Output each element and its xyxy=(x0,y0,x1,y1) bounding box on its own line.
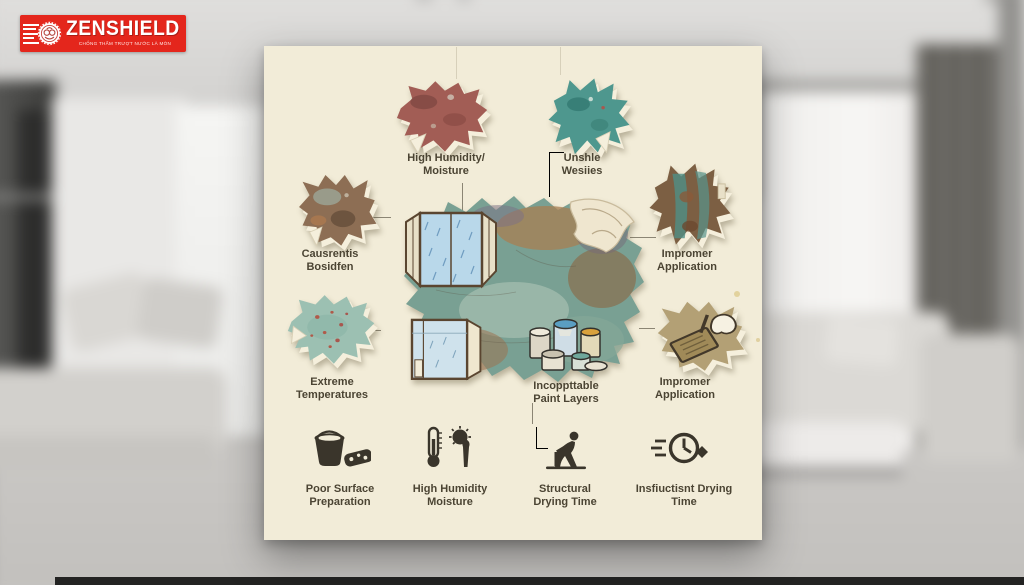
peeled-paint-patch-teal xyxy=(545,75,633,161)
card-crease xyxy=(560,47,561,75)
card-stain xyxy=(756,338,760,342)
thermometer-sun-icon xyxy=(422,425,480,473)
open-window-interior-illustration xyxy=(412,320,480,379)
open-window-rain-illustration xyxy=(406,213,496,286)
callout-label-impromer-lower: Impromer Application xyxy=(623,376,747,403)
rosette-seal-icon xyxy=(36,20,63,47)
cause-label-insufficient-drying: Insfiuctisnt Drying Time xyxy=(624,483,744,510)
sofa-pillow xyxy=(136,277,224,350)
cause-label-structural-drying: Structural Drying Time xyxy=(505,483,625,510)
trowel-hand-patch xyxy=(650,297,748,379)
brand-name: ZENSHIELD xyxy=(66,17,175,40)
central-peeled-wall-illustration xyxy=(396,190,646,386)
right-sofa-arm xyxy=(920,334,1020,462)
callout-label-unshle-wesiies: Unshle Wesiies xyxy=(520,152,644,179)
worker-drilling-icon xyxy=(537,430,595,470)
brand-tagline: CHỐNG THẤM TRƯỢT NƯỚC LÀ MÒN xyxy=(66,41,184,46)
callout-label-high-humidity: High Humidity/ Moisture xyxy=(384,152,508,179)
right-sofa-pillow xyxy=(824,315,900,367)
callout-label-impromer-upper: Impromer Application xyxy=(625,248,749,275)
coffee-table xyxy=(740,422,902,468)
peeled-paint-patch-speckled xyxy=(286,292,378,370)
callout-label-extreme-temperatures: Extreme Temperatures xyxy=(270,376,394,403)
peeled-paint-patch-rust-teal xyxy=(646,160,734,252)
screenshot-root: ZENSHIELD CHỐNG THẤM TRƯỢT NƯỚC LÀ MÒN xyxy=(0,0,1024,585)
speeding-clock-icon xyxy=(650,428,712,470)
callout-label-causrentis: Causrentis Bosidfen xyxy=(268,248,392,275)
card-crease xyxy=(456,47,457,79)
floor-baseboard-strip xyxy=(55,577,1024,585)
left-shelf xyxy=(0,194,54,200)
bucket-sponge-icon xyxy=(309,428,371,472)
left-sofa-seat xyxy=(0,436,216,470)
peeled-paint-patch-rust xyxy=(292,170,380,254)
infographic-card: High Humidity/ Moisture Unshle Wesiies C… xyxy=(264,46,762,540)
cause-label-poor-surface: Poor Surface Preparation xyxy=(280,483,400,510)
peeled-paint-patch-red xyxy=(395,78,491,158)
callout-label-incoppttable: Incoppttable Paint Layers xyxy=(504,380,628,407)
brand-logo: ZENSHIELD CHỐNG THẤM TRƯỢT NƯỚC LÀ MÒN xyxy=(20,15,186,52)
coffee-table-shadow xyxy=(740,466,902,476)
cause-label-high-humidity: High Humidity Moisture xyxy=(390,483,510,510)
